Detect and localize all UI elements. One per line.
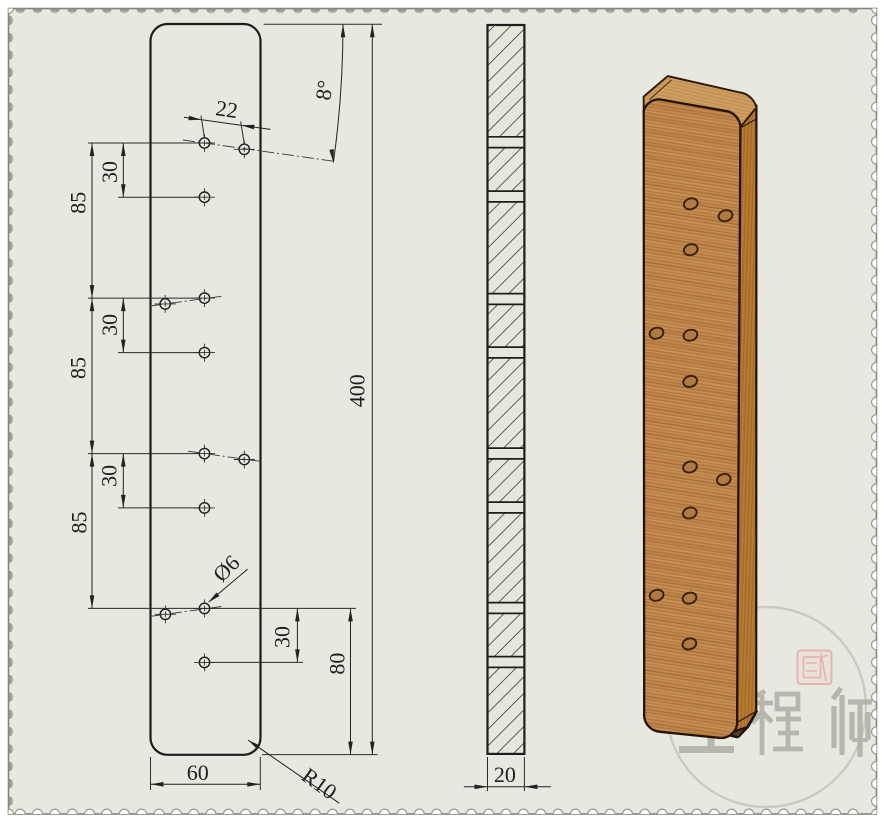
svg-text:85: 85 <box>66 512 91 534</box>
svg-text:30: 30 <box>97 314 122 336</box>
svg-text:60: 60 <box>187 760 209 785</box>
svg-text:80: 80 <box>325 653 350 675</box>
svg-text:85: 85 <box>66 357 91 379</box>
svg-text:85: 85 <box>66 192 91 214</box>
svg-text:30: 30 <box>97 465 122 487</box>
svg-text:20: 20 <box>494 762 516 787</box>
svg-text:400: 400 <box>345 374 370 407</box>
svg-text:30: 30 <box>270 626 295 648</box>
svg-text:22: 22 <box>214 95 239 123</box>
svg-text:8°: 8° <box>310 79 338 102</box>
svg-text:30: 30 <box>97 161 122 183</box>
